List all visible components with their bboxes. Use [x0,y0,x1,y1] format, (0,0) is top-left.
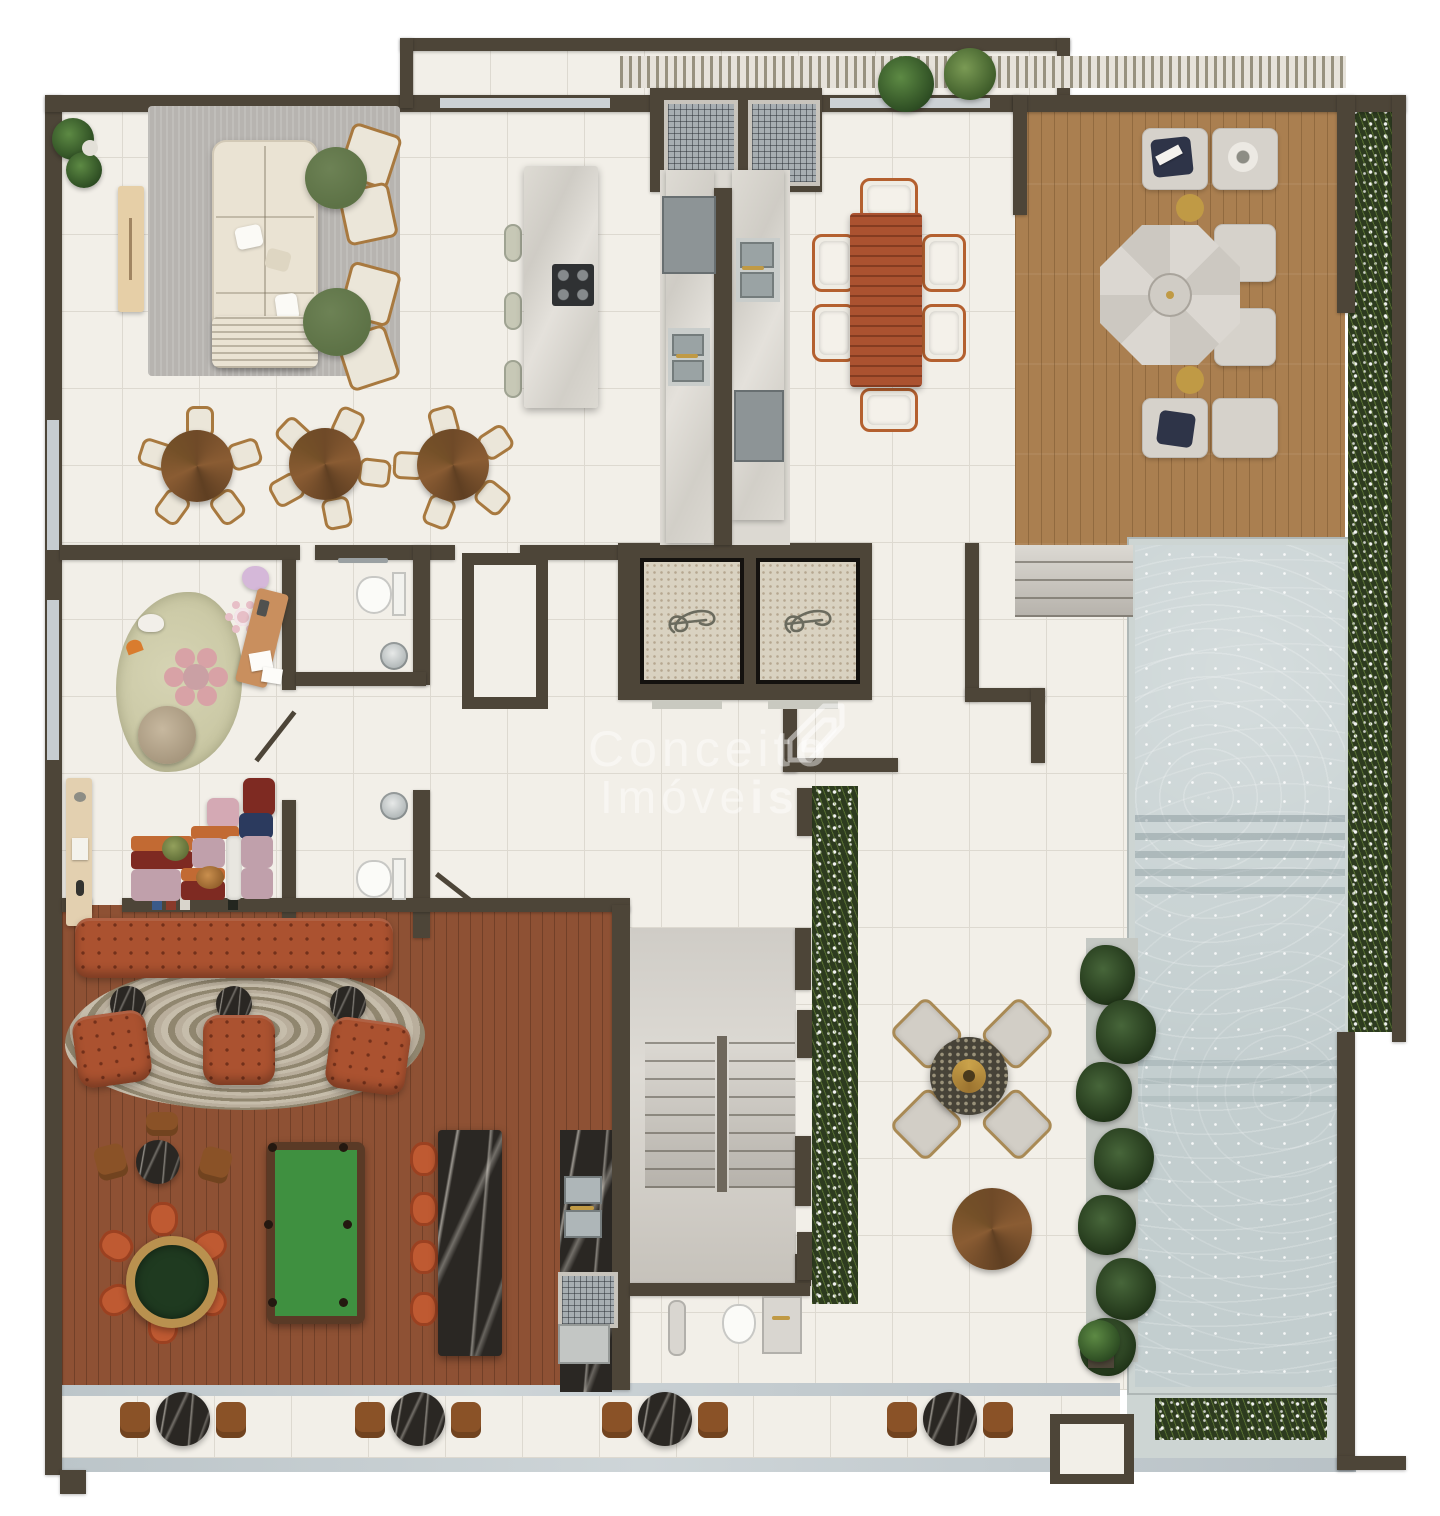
window-top [440,98,610,108]
potted-plant [944,48,996,100]
chair-cushion [929,311,959,355]
bistro-table [156,1392,210,1446]
bar-stool [410,1192,438,1226]
bistro-chair [216,1402,246,1438]
billiards-pocket [343,1220,352,1229]
hedge-plant [1080,945,1135,1005]
potted-plant [878,56,934,112]
play-block [241,836,273,868]
pool-bench-step [1135,815,1345,822]
fire-pit-flame [963,1070,975,1082]
billiards-pocket [339,1143,348,1152]
corner-plant [66,152,102,188]
sofa-seam [216,216,314,218]
cooktop [552,264,594,306]
tufted-armchair [323,1015,412,1097]
island-stool [504,292,522,330]
wall-deck-right [1337,95,1355,313]
gold-faucet [570,1206,594,1210]
elevator-threshold [652,700,722,709]
side-table-gold [1176,366,1204,394]
oven-appliance [734,390,784,462]
chair-cushion [867,185,911,215]
swimming-pool [1135,545,1345,1387]
planter-pillar [797,1010,812,1058]
brand-logo-icon [784,698,848,770]
wc-vanity [762,1296,802,1354]
play-block [192,838,225,868]
play-block [243,778,275,816]
poker-chair [148,1202,178,1236]
stair-flight-right [729,1040,795,1188]
wc-pedestal [668,1300,686,1356]
plant-pot [82,140,98,156]
service-block-wall-left [400,38,413,108]
hedge-plant [1094,1128,1154,1190]
patio-dining-table [850,213,922,387]
sink-basin [672,360,704,382]
chair-cushion [819,311,849,355]
patio-dining-chair [922,234,966,292]
watermark-text: Imóve [600,771,750,823]
bistro-chair [120,1402,150,1438]
play-block [241,868,273,899]
chair-cushion [819,241,849,285]
washbasin [380,792,408,820]
bistro-table [391,1392,445,1446]
kids-pouf [138,706,196,764]
pool-bench-step [1135,887,1345,894]
stair-divider [717,1036,727,1192]
flower-cushion [183,664,209,690]
dining-table-round [289,428,361,500]
wall-corner-bottom-right [1337,1456,1406,1470]
sofa-seam [216,292,314,294]
island-stool [504,224,522,262]
patio-dining-chair [860,388,918,432]
bistro-chair [355,1402,385,1438]
dining-chair [357,457,392,489]
kitchen-spine-wall [714,188,732,545]
hedgehog-plush [196,866,224,889]
sink-basin [672,334,704,356]
elevator-cab-2 [756,558,860,684]
play-block [226,836,242,900]
console-item [72,838,88,860]
toilet-tank [392,572,406,616]
wall-bath-3 [413,790,430,938]
pool-bench-step [1135,869,1345,876]
bar-sink [564,1210,602,1238]
toilet [722,1304,756,1344]
bistro-table [923,1392,977,1446]
toilet [356,576,392,614]
sideboard-handle [129,218,132,280]
chair-cushion [867,395,911,425]
window-strip [47,600,59,760]
floor-plan-rendering: Conceito Imóveis [0,0,1440,1516]
wall-stub-bottom-left [60,1470,86,1494]
bistro-chair [887,1402,917,1438]
wall-right-lower [1337,1032,1355,1470]
round-wood-daybed [952,1188,1032,1270]
coffee-table-green [303,288,371,356]
cafe-table-marble [136,1140,180,1184]
umbrella-pole [1166,291,1174,299]
blob-stool [242,566,269,590]
toilet-tank [392,858,406,900]
storage-closet [462,553,548,709]
wall-bath-1 [413,545,430,685]
sun-lounger [1212,398,1278,458]
gold-faucet [742,266,764,270]
chesterfield-sofa [75,918,393,978]
pool-marble-band-bottom [60,1458,1356,1472]
kitchen-counter-right [732,170,784,520]
gold-faucet [772,1316,790,1320]
bar-stool [410,1142,438,1176]
stair-wall-pillar [795,928,811,990]
watermark-line2: Imóveis [600,774,799,820]
bistro-chair [602,1402,632,1438]
wall-outer-right [1392,95,1406,1042]
bar-sink [564,1176,602,1204]
pool-end-planter [1155,1398,1327,1440]
wall-deck-left-stub [1013,95,1027,215]
wall-mid-1 [60,545,300,560]
pool-step-lower [1135,1096,1345,1102]
elevator-cab-1 [640,558,744,684]
play-block [207,798,239,828]
towel-rail [338,558,388,563]
bistro-chair [698,1402,728,1438]
wall-kids-right-upper [282,560,296,690]
chair-cushion [929,241,959,285]
hedge-plant [1096,1000,1156,1064]
wall-lobby-right [965,543,979,700]
bar-stool [410,1292,438,1326]
bistro-table [638,1392,692,1446]
wall-gameroom-top-b [122,898,630,912]
bar-appliance [558,1324,610,1364]
sink-basin [740,272,774,298]
island-stool [504,360,522,398]
stair-flight-left [645,1040,715,1188]
dining-chair [320,495,354,532]
planter-box-dark [1050,1414,1134,1484]
billiards-pocket [264,1220,273,1229]
hedge-plant [1076,1062,1132,1122]
sun-hat [1228,142,1258,172]
dining-table-round [417,429,489,501]
bar-stool [410,1240,438,1274]
tufted-armchair [203,1015,275,1085]
console-item [76,880,84,896]
washbasin [380,642,408,670]
bar-counter [438,1130,502,1356]
pool-bench-step [1135,833,1345,840]
potted-plant [1078,1320,1120,1362]
drawing-paper [261,667,283,685]
billiards-table [267,1142,365,1324]
turtle-plush [162,836,189,861]
patio-dining-chair [922,304,966,362]
elevator-symbol-icon [778,600,838,642]
billiards-pocket [339,1298,348,1307]
cafe-chair [146,1112,178,1136]
wall-left [45,95,62,1475]
poker-table [126,1236,218,1328]
billiards-pocket [268,1298,277,1307]
dining-table-round [161,430,233,502]
pool-step-lower [1135,1078,1345,1084]
play-block [131,869,181,901]
toy-shell [138,614,164,632]
toilet [356,860,392,898]
window-strip [47,420,59,550]
sink-basin [740,242,774,268]
watermark-text: Concei [588,721,774,777]
hedge-plant [1078,1195,1136,1255]
wall-lobby-corner [1031,688,1045,763]
gold-faucet [676,354,698,358]
planter-pillar [797,1232,812,1280]
wine-fridge [558,1272,618,1328]
refrigerator [662,196,716,274]
elevator-symbol-icon [662,600,722,642]
billiards-pocket [268,1143,277,1152]
bistro-chair [983,1402,1013,1438]
pool-bench-step [1135,851,1345,858]
watermark-text-bold: is [750,771,798,823]
stair-wall-pillar [795,1136,811,1206]
deck-steps [1015,545,1133,617]
wall-bath-2 [296,672,426,686]
planter-pillar [797,788,812,836]
stair-planter [812,786,858,1304]
hedge-plant [1096,1258,1156,1320]
tufted-armchair [70,1008,153,1090]
pool-step-lower [1135,1060,1345,1066]
console-item [74,792,86,802]
stair-hall-south-wall [630,1283,810,1296]
lounger-pillow [1156,410,1196,449]
coffee-table-green [305,147,367,209]
bistro-chair [451,1402,481,1438]
side-table-gold [1176,194,1204,222]
